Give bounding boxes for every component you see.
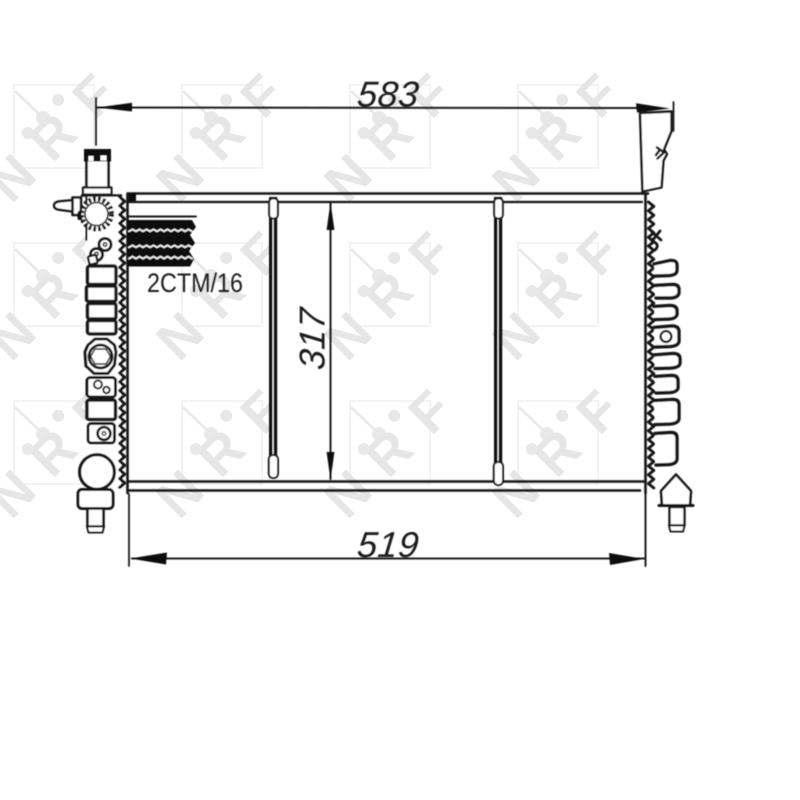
svg-text:317: 317 <box>292 304 333 371</box>
svg-text:2CTM/16: 2CTM/16 <box>147 268 243 298</box>
svg-text:519: 519 <box>355 524 421 565</box>
svg-text:583: 583 <box>355 74 421 115</box>
